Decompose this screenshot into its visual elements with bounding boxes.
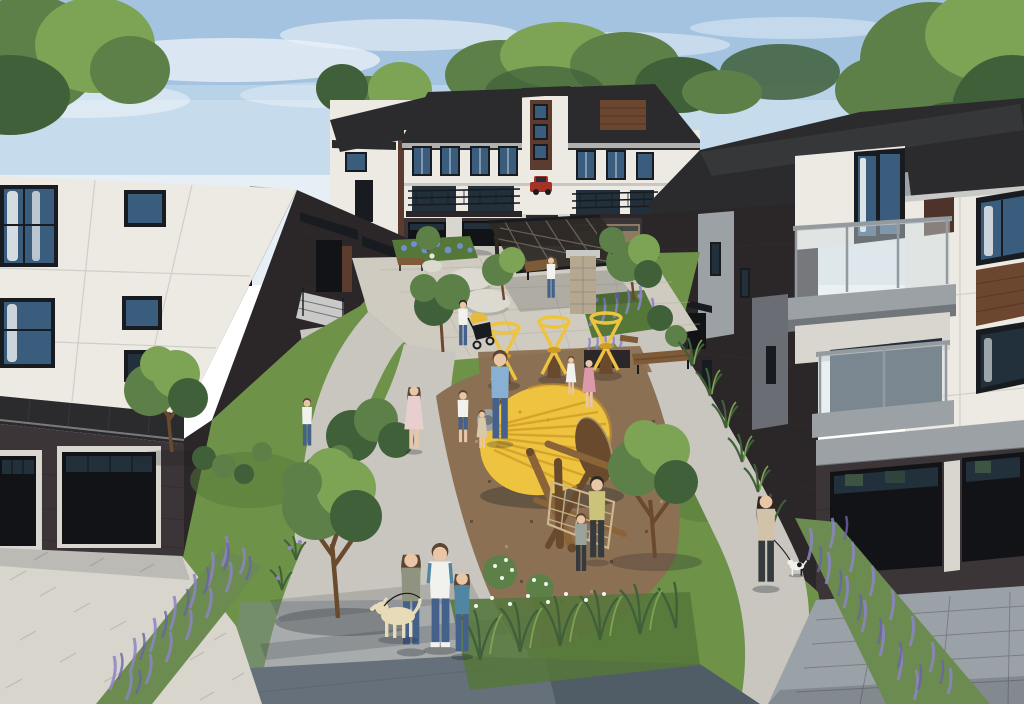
window-large — [0, 185, 58, 267]
stone-pillar — [566, 250, 600, 314]
window-large — [0, 298, 55, 368]
window-large — [976, 322, 1024, 394]
boulder — [422, 260, 442, 272]
window-small — [122, 296, 162, 330]
window-large — [976, 190, 1024, 266]
garage-door — [0, 450, 42, 550]
rendering-canvas — [0, 0, 1024, 704]
garage-door — [962, 452, 1024, 562]
townhome-courtyard-rendering — [0, 0, 1024, 704]
balcony-lower — [795, 312, 954, 438]
wood-accent-panel — [976, 262, 1024, 326]
wood-accent-parapet — [600, 100, 646, 130]
window-small — [124, 190, 166, 227]
